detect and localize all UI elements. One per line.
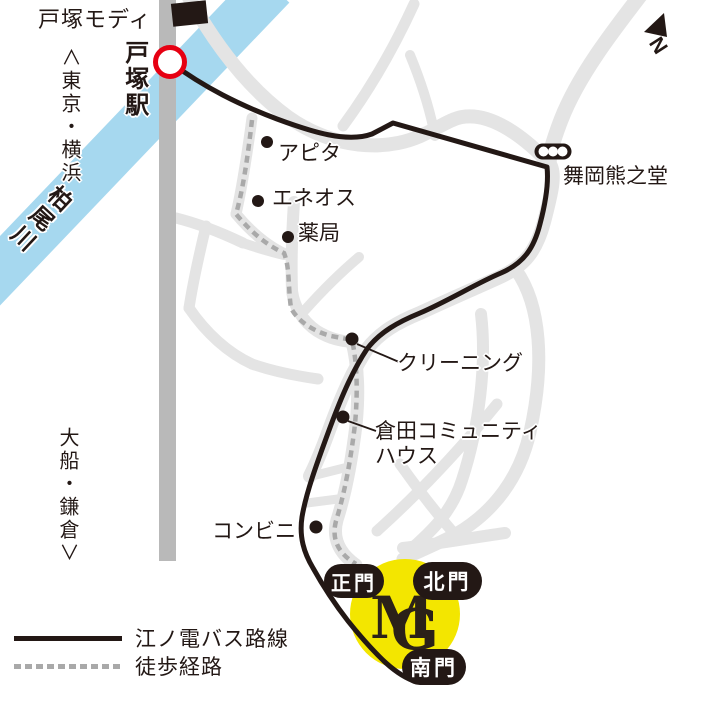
road-rung-2 [307,499,338,503]
label-maioka-kumanodo: 舞岡熊之堂 [563,164,668,189]
eneos-bullet [252,195,264,207]
label-totsuka-station: 戸塚駅 [119,40,148,118]
road-cluster-3 [189,308,252,364]
label-apita: アピタ [278,141,341,166]
north-gate-badge: 北門 [413,562,482,600]
bus-line-sample [14,636,122,641]
label-cleaning: クリーニング [397,351,523,376]
totsuka-modi-building [171,0,208,27]
traffic-signal-icon [535,144,572,160]
main-gate-badge: 正門 [324,564,384,598]
cleaning-bullet [346,333,359,346]
legend-walk-row: 徒歩経路 [14,652,289,680]
legend-walk-label: 徒歩経路 [135,651,223,681]
road-up-branch [343,4,414,126]
kurata-bullet [337,411,350,424]
road-up-small [410,55,435,136]
label-kurata-community-house: 倉田コミュニティ ハウス [375,419,542,469]
convenience-bullet [310,521,323,534]
apita-bullet [261,136,273,148]
road-cluster-4 [252,364,318,379]
label-to-ofuna-kamakura: 大船・鎌倉∨ [55,427,79,565]
label-totsuka-modi: 戸塚モディ [38,7,151,33]
campus-access-map: M G 戸塚モディ 戸塚駅 ∧東京・横浜 柏尾 [0,0,701,701]
map-legend: 江ノ電バス路線 徒歩経路 [14,624,289,680]
label-eneos: エネオス [272,186,356,211]
road-pharmacy [292,202,294,291]
road-cluster-6 [305,257,359,310]
road-network [176,0,646,565]
road-cluster-2 [189,226,206,308]
legend-bus-label: 江ノ電バス路線 [135,623,289,653]
legend-bus-row: 江ノ電バス路線 [14,624,289,652]
south-gate-badge: 南門 [402,649,466,685]
totsuka-station-marker [156,48,185,77]
pharmacy-bullet [282,231,294,243]
railway-line [159,0,176,561]
label-convenience-store: コンビニ [212,519,296,544]
walk-line-sample [14,664,122,669]
label-to-tokyo-yokohama: ∧東京・横浜 [57,47,81,185]
road-northeast [549,0,646,163]
label-pharmacy: 薬局 [298,221,340,246]
